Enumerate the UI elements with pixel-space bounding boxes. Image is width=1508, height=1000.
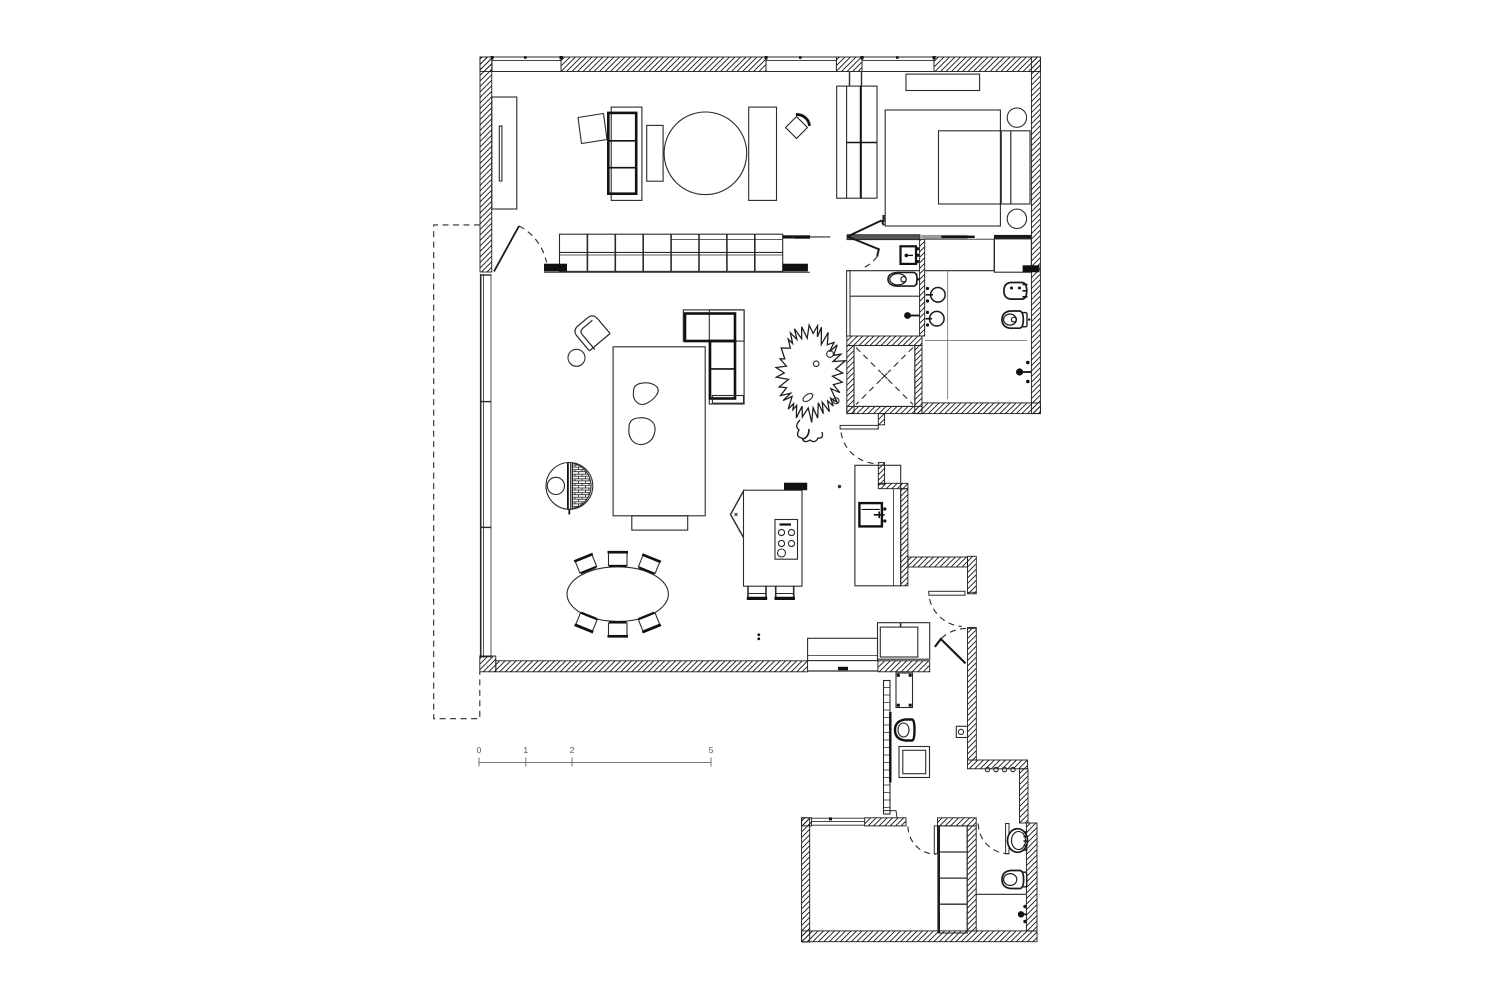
svg-text:2: 2 bbox=[570, 745, 575, 755]
svg-text:1: 1 bbox=[523, 745, 528, 755]
svg-text:5: 5 bbox=[709, 745, 714, 755]
svg-text:0: 0 bbox=[477, 745, 482, 755]
